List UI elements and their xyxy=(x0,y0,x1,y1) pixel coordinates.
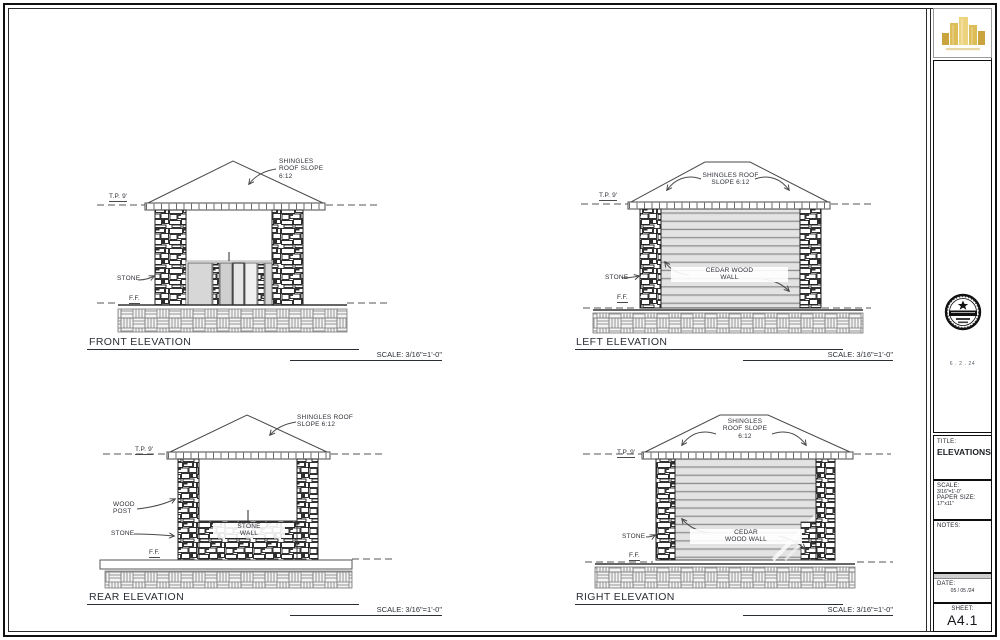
tp-datum-label: T.P. 9' xyxy=(599,192,617,201)
titleblock-divider-line xyxy=(926,8,927,632)
title-label: TITLE: xyxy=(937,439,988,445)
logo-box xyxy=(933,8,992,58)
drawing-sheet: T.P. 9' SHINGLES ROOF SLOPE 6:12 STONE F… xyxy=(0,0,1000,640)
roof-note: SHINGLES ROOF SLOPE 6:12 xyxy=(668,172,793,187)
stone-label: STONE xyxy=(117,275,140,282)
roof-note: SHINGLES ROOF SLOPE 6:12 xyxy=(685,418,805,440)
sheet-box: SHEET: A4.1 xyxy=(933,603,992,632)
view-title: REAR ELEVATION xyxy=(89,591,184,603)
city-buildings-logo-icon xyxy=(936,12,990,54)
view-scale: SCALE: 3/16"=1'-0" xyxy=(290,605,442,616)
ff-datum-label: F.F. xyxy=(149,549,160,558)
wood-post-note: WOOD POST xyxy=(113,501,135,516)
view-title: LEFT ELEVATION xyxy=(576,336,667,348)
date-box: DATE: 05 / 05 /24 xyxy=(933,573,992,603)
title-box: TITLE: ELEVATIONS xyxy=(933,435,992,480)
elevation-left: T.P. 9' SHINGLES ROOF SLOPE 6:12 STONE C… xyxy=(573,148,905,366)
scale-box: SCALE: 3/16"=1'-0" PAPER SIZE: 17"x11" xyxy=(933,480,992,520)
rear-elevation-drawing xyxy=(85,402,457,617)
sheet-title: ELEVATIONS xyxy=(937,447,988,457)
view-scale: SCALE: 3/16"=1'-0" xyxy=(743,605,893,616)
stone-label: STONE xyxy=(111,530,134,537)
paper-size-value: 17"x11" xyxy=(937,501,988,507)
stone-label: STONE xyxy=(605,274,628,281)
seal-date: 6 . 2 . 24 xyxy=(934,361,991,367)
date-value: 05 / 05 /24 xyxy=(934,588,991,594)
stamp-box: 6 . 2 . 24 xyxy=(933,60,992,433)
cedar-wall-note: CEDAR WOOD WALL xyxy=(690,529,802,544)
view-title: RIGHT ELEVATION xyxy=(576,591,675,603)
roof-note: SHINGLES ROOF SLOPE 6:12 xyxy=(279,158,323,180)
stone-label: STONE xyxy=(622,533,645,540)
view-scale: SCALE: 3/16"=1'-0" xyxy=(743,350,893,361)
titleblock: 6 . 2 . 24 TITLE: ELEVATIONS SCALE: 3/16… xyxy=(933,8,992,632)
stone-wall-note: STONE WALL xyxy=(213,523,285,538)
tp-datum-label: T.P. 9' xyxy=(617,449,635,458)
tp-datum-label: T.P. 9' xyxy=(135,446,153,455)
elevation-rear: SHINGLES ROOF SLOPE 6:12 T.P. 9' WOOD PO… xyxy=(85,402,457,617)
roof-note: SHINGLES ROOF SLOPE 6:12 xyxy=(297,414,353,429)
ff-datum-label: F.F. xyxy=(617,294,628,303)
ff-datum-label: F.F. xyxy=(629,552,640,561)
ff-datum-label: F.F. xyxy=(129,295,140,304)
date-label: DATE: xyxy=(937,581,991,587)
notes-box: NOTES: xyxy=(933,520,992,573)
notes-label: NOTES: xyxy=(937,523,988,529)
tp-datum-label: T.P. 9' xyxy=(109,193,127,202)
front-elevation-drawing xyxy=(85,148,447,366)
view-scale: SCALE: 3/16"=1'-0" xyxy=(290,350,442,361)
elevation-right: SHINGLES ROOF SLOPE 6:12 T.P. 9' STONE C… xyxy=(573,402,905,617)
elevation-front: T.P. 9' SHINGLES ROOF SLOPE 6:12 STONE F… xyxy=(85,148,447,366)
date-box-shading xyxy=(934,574,991,579)
view-title: FRONT ELEVATION xyxy=(89,336,191,348)
cedar-wall-note: CEDAR WOOD WALL xyxy=(671,267,788,282)
sheet-number: A4.1 xyxy=(934,612,991,628)
titleblock-divider-line2 xyxy=(930,8,931,632)
architect-seal-icon xyxy=(941,289,985,337)
